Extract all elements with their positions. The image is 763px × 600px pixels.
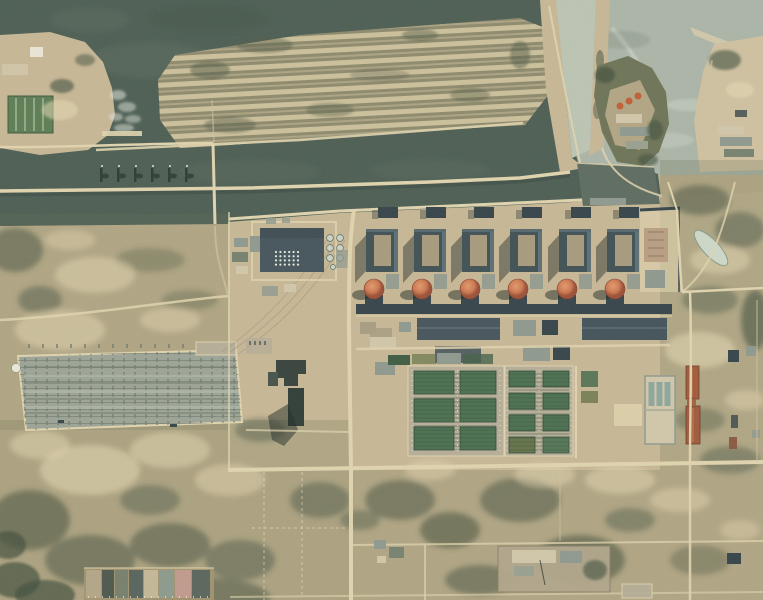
grain-overlay [0, 0, 763, 600]
satellite-screenshot [0, 0, 763, 600]
satellite-view [0, 0, 763, 600]
